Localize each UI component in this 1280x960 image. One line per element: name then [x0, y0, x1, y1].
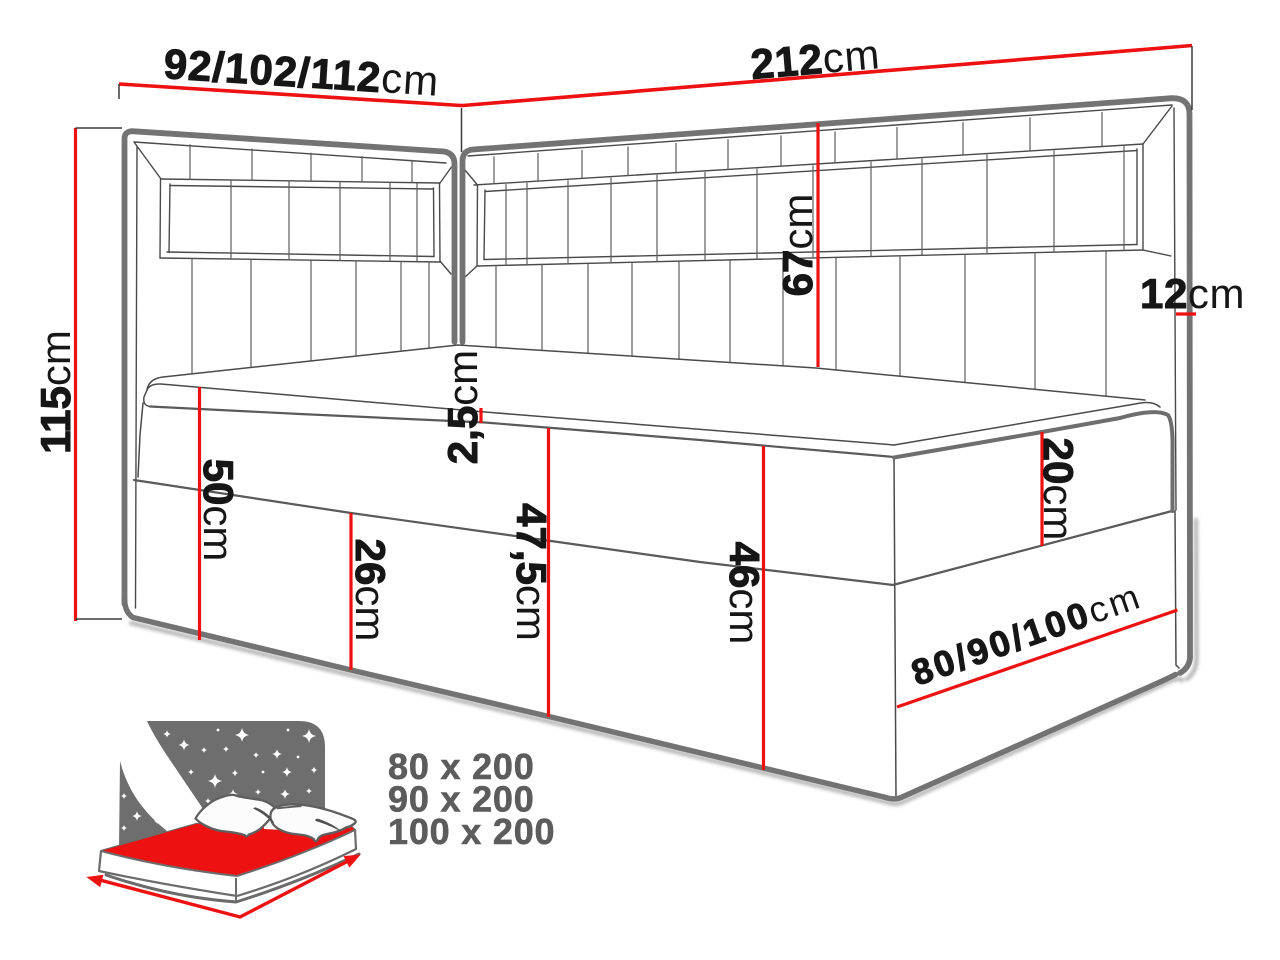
svg-text:47,5cm: 47,5cm — [508, 503, 555, 641]
svg-text:100 x 200: 100 x 200 — [388, 811, 555, 852]
svg-text:2,5cm: 2,5cm — [439, 350, 486, 464]
svg-text:20cm: 20cm — [1035, 438, 1082, 541]
svg-text:67cm: 67cm — [774, 194, 821, 297]
svg-text:26cm: 26cm — [347, 539, 394, 642]
svg-text:115cm: 115cm — [32, 330, 79, 454]
svg-text:50cm: 50cm — [195, 459, 242, 562]
svg-text:12cm: 12cm — [1140, 270, 1245, 317]
svg-text:46cm: 46cm — [721, 542, 768, 645]
